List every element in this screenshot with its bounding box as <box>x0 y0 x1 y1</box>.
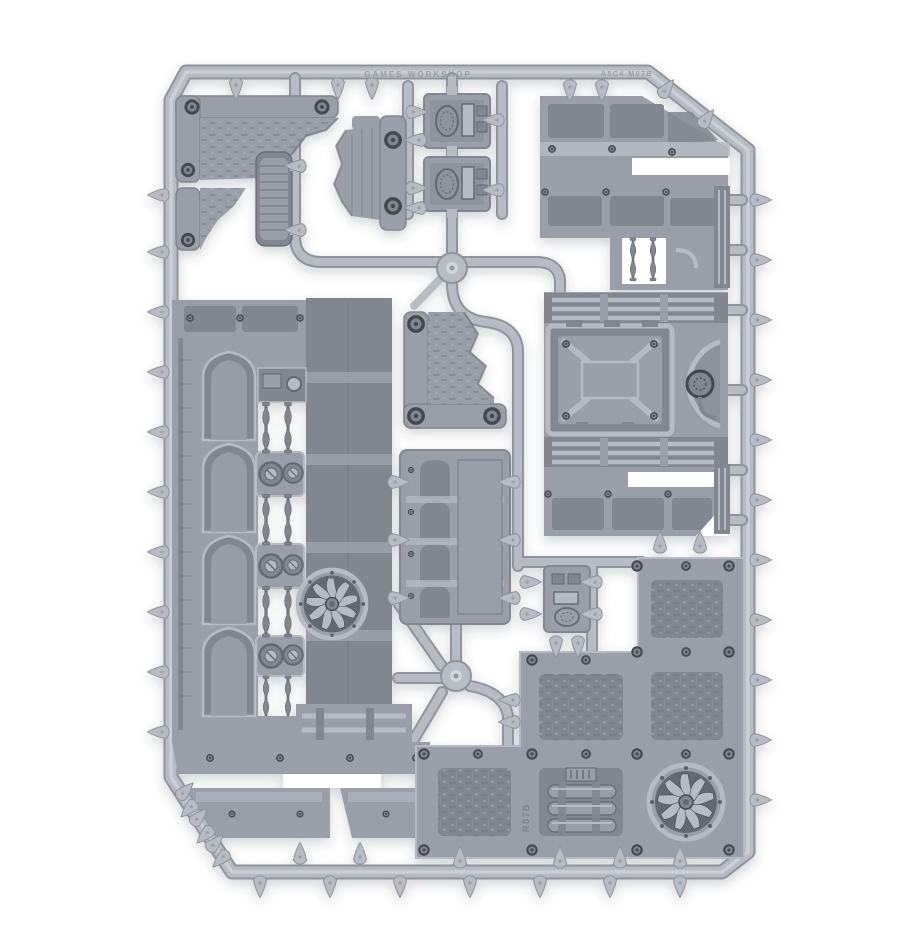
sprue-hub <box>437 253 467 283</box>
wall-backing-panel <box>306 298 392 742</box>
wall-pipes-band <box>296 704 412 744</box>
pipe-machinery-cell <box>539 768 623 836</box>
code-emboss-text: A5C4 M07B <box>601 71 653 78</box>
pipe-strip <box>544 437 728 467</box>
turbine-fan-part <box>649 765 723 839</box>
wheel-pulley-cell <box>256 452 304 496</box>
machinery-greeble-cell <box>258 368 306 402</box>
sprue-hub <box>441 661 471 691</box>
blast-door-wall-part <box>544 292 730 536</box>
small-hatch-panel-part <box>424 86 490 158</box>
small-hatch-panel-part <box>424 157 490 218</box>
product-photo-stage: R07B <box>0 0 918 948</box>
sprue-photo: R07B <box>0 0 918 948</box>
small-hatch-panel-part <box>544 566 590 632</box>
pipe-strip <box>544 293 728 323</box>
floor-part-code-text: R07B <box>521 803 531 832</box>
blast-door <box>548 320 672 434</box>
large-industrial-wall-part <box>172 298 430 838</box>
wheel-pulley-cell <box>256 636 304 676</box>
turbine-fan-part <box>298 570 366 638</box>
wheel-pulley-cell <box>256 544 304 588</box>
sprue: R07B <box>148 70 772 898</box>
arched-wall-panel-part <box>400 450 510 624</box>
brand-emboss-text: GAMES WORKSHOP <box>364 70 472 79</box>
